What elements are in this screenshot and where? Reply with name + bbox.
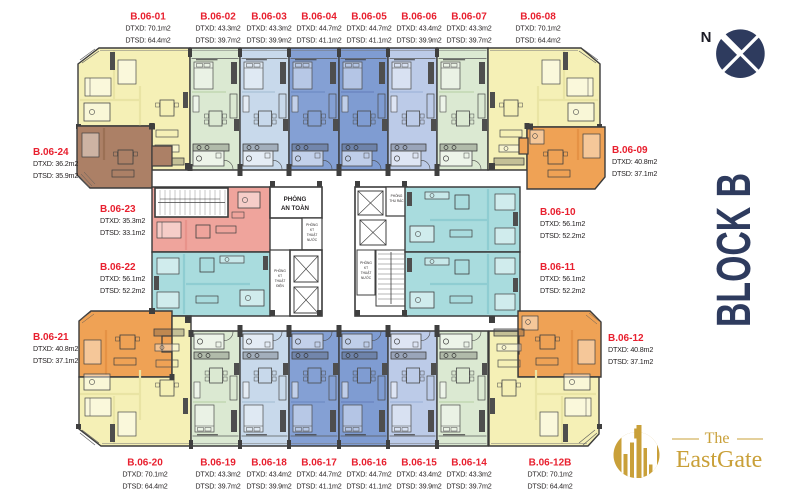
svg-text:DTXD: 56.1m2: DTXD: 56.1m2 <box>540 219 585 228</box>
svg-text:DTXD: 43.4m2: DTXD: 43.4m2 <box>396 470 441 479</box>
svg-text:N: N <box>701 29 712 46</box>
svg-text:DTXD: 44.7m2: DTXD: 44.7m2 <box>346 470 391 479</box>
svg-text:PHÒNG: PHÒNG <box>360 260 372 265</box>
svg-text:DTXD: 56.1m2: DTXD: 56.1m2 <box>540 274 585 283</box>
svg-text:ĐIỆN: ĐIỆN <box>276 283 284 288</box>
svg-text:BLOCK B: BLOCK B <box>708 173 761 327</box>
svg-text:NƯỚC: NƯỚC <box>361 275 372 280</box>
svg-text:DTSD: 41.1m2: DTSD: 41.1m2 <box>346 482 391 491</box>
svg-text:DTXD: 70.1m2: DTXD: 70.1m2 <box>122 470 167 479</box>
svg-text:DTSD: 39.7m2: DTSD: 39.7m2 <box>195 482 240 491</box>
svg-text:B.06-24: B.06-24 <box>33 147 69 158</box>
svg-text:B.06-15: B.06-15 <box>401 458 437 469</box>
svg-text:B.06-16: B.06-16 <box>351 458 387 469</box>
svg-text:DTXD: 43.3m2: DTXD: 43.3m2 <box>195 24 240 33</box>
svg-text:B.06-03: B.06-03 <box>251 12 287 23</box>
svg-text:DTXD: 70.1m2: DTXD: 70.1m2 <box>515 24 560 33</box>
svg-text:DTXD: 40.8m2: DTXD: 40.8m2 <box>33 344 78 353</box>
svg-text:THUẬT: THUẬT <box>361 271 372 275</box>
svg-text:DTSD: 41.1m2: DTSD: 41.1m2 <box>346 36 391 45</box>
svg-text:B.06-01: B.06-01 <box>130 12 166 23</box>
svg-text:B.06-06: B.06-06 <box>401 12 437 23</box>
svg-text:DTSD: 52.2m2: DTSD: 52.2m2 <box>100 286 145 295</box>
svg-text:DTXD: 44.7m2: DTXD: 44.7m2 <box>296 470 341 479</box>
svg-text:B.06-17: B.06-17 <box>301 458 337 469</box>
svg-text:DTSD: 39.7m2: DTSD: 39.7m2 <box>446 36 491 45</box>
svg-text:B.06-18: B.06-18 <box>251 458 287 469</box>
svg-text:THUẬT: THUẬT <box>307 233 318 237</box>
svg-text:KT: KT <box>310 228 314 232</box>
svg-text:B.06-07: B.06-07 <box>451 12 487 23</box>
svg-text:DTSD: 37.1m2: DTSD: 37.1m2 <box>608 357 653 366</box>
svg-text:DTXD: 43.3m2: DTXD: 43.3m2 <box>446 24 491 33</box>
svg-text:B.06-10: B.06-10 <box>540 207 576 218</box>
svg-text:DTSD: 64.4m2: DTSD: 64.4m2 <box>515 36 560 45</box>
svg-text:B.06-08: B.06-08 <box>520 12 556 23</box>
svg-text:PHÒNG: PHÒNG <box>274 268 286 273</box>
svg-text:DTSD: 64.4m2: DTSD: 64.4m2 <box>527 482 572 491</box>
svg-text:DTXD: 35.3m2: DTXD: 35.3m2 <box>100 216 145 225</box>
svg-text:DTSD: 37.1m2: DTSD: 37.1m2 <box>33 356 78 365</box>
svg-text:DTSD: 39.7m2: DTSD: 39.7m2 <box>446 482 491 491</box>
svg-text:DTXD: 70.1m2: DTXD: 70.1m2 <box>125 24 170 33</box>
svg-text:DTSD: 33.1m2: DTSD: 33.1m2 <box>100 228 145 237</box>
svg-text:B.06-11: B.06-11 <box>540 262 575 273</box>
svg-text:B.06-04: B.06-04 <box>301 12 337 23</box>
svg-text:AN TOÀN: AN TOÀN <box>281 205 310 212</box>
svg-text:B.06-21: B.06-21 <box>33 332 69 343</box>
svg-text:B.06-14: B.06-14 <box>451 458 487 469</box>
svg-text:B.06-02: B.06-02 <box>200 12 236 23</box>
svg-text:DTXD: 43.3m2: DTXD: 43.3m2 <box>195 470 240 479</box>
svg-text:DTXD: 43.3m2: DTXD: 43.3m2 <box>246 24 291 33</box>
svg-text:KT: KT <box>364 266 368 270</box>
svg-text:DTSD: 64.4m2: DTSD: 64.4m2 <box>125 36 170 45</box>
svg-text:B.06-09: B.06-09 <box>612 145 648 156</box>
svg-text:THUẬT: THUẬT <box>275 279 286 283</box>
svg-text:THU RÁC: THU RÁC <box>389 199 404 203</box>
svg-text:KT: KT <box>278 274 282 278</box>
svg-text:B.06-12: B.06-12 <box>608 333 644 344</box>
svg-text:B.06-12B: B.06-12B <box>529 458 572 469</box>
svg-text:DTSD: 52.2m2: DTSD: 52.2m2 <box>540 286 585 295</box>
svg-text:PHÒNG: PHÒNG <box>306 222 318 227</box>
svg-text:DTXD: 36.2m2: DTXD: 36.2m2 <box>33 159 78 168</box>
svg-text:DTSD: 41.1m2: DTSD: 41.1m2 <box>296 36 341 45</box>
svg-text:DTSD: 39.9m2: DTSD: 39.9m2 <box>246 482 291 491</box>
svg-text:DTSD: 41.1m2: DTSD: 41.1m2 <box>296 482 341 491</box>
svg-text:DTXD: 43.3m2: DTXD: 43.3m2 <box>446 470 491 479</box>
svg-text:DTSD: 35.9m2: DTSD: 35.9m2 <box>33 171 78 180</box>
svg-text:B.06-22: B.06-22 <box>100 262 136 273</box>
svg-text:DTSD: 37.1m2: DTSD: 37.1m2 <box>612 169 657 178</box>
svg-text:The: The <box>705 430 730 447</box>
svg-text:B.06-05: B.06-05 <box>351 12 387 23</box>
svg-text:DTXD: 43.4m2: DTXD: 43.4m2 <box>246 470 291 479</box>
svg-text:DTXD: 70.1m2: DTXD: 70.1m2 <box>527 470 572 479</box>
svg-text:DTXD: 44.7m2: DTXD: 44.7m2 <box>346 24 391 33</box>
svg-text:DTXD: 56.1m2: DTXD: 56.1m2 <box>100 274 145 283</box>
svg-text:DTSD: 64.4m2: DTSD: 64.4m2 <box>122 482 167 491</box>
svg-text:DTXD: 43.4m2: DTXD: 43.4m2 <box>396 24 441 33</box>
svg-text:B.06-23: B.06-23 <box>100 204 136 215</box>
svg-text:DTSD: 39.9m2: DTSD: 39.9m2 <box>246 36 291 45</box>
svg-text:DTXD: 40.8m2: DTXD: 40.8m2 <box>608 345 653 354</box>
svg-text:NƯỚC: NƯỚC <box>307 237 318 242</box>
svg-text:DTXD: 40.8m2: DTXD: 40.8m2 <box>612 157 657 166</box>
svg-text:DTSD: 39.9m2: DTSD: 39.9m2 <box>396 36 441 45</box>
svg-text:PHÒNG: PHÒNG <box>391 193 403 198</box>
svg-text:DTSD: 39.7m2: DTSD: 39.7m2 <box>195 36 240 45</box>
svg-text:DTSD: 39.9m2: DTSD: 39.9m2 <box>396 482 441 491</box>
svg-text:PHÒNG: PHÒNG <box>284 195 307 203</box>
svg-text:DTXD: 44.7m2: DTXD: 44.7m2 <box>296 24 341 33</box>
svg-text:EastGate: EastGate <box>676 447 763 473</box>
svg-text:DTSD: 52.2m2: DTSD: 52.2m2 <box>540 231 585 240</box>
svg-text:B.06-19: B.06-19 <box>200 458 236 469</box>
svg-text:B.06-20: B.06-20 <box>127 458 163 469</box>
